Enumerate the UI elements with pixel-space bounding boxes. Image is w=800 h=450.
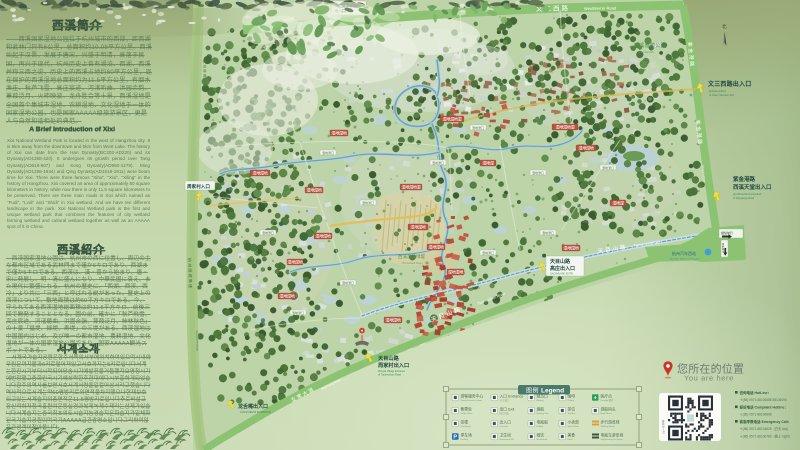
- svg-text:周家村入口: 周家村入口: [187, 183, 210, 190]
- svg-text:湿地湿地: 湿地湿地: [252, 170, 268, 177]
- svg-text:Restaurant: Restaurant: [537, 438, 548, 441]
- svg-text:紫金港路: 紫金港路: [733, 175, 756, 183]
- svg-text:LONGSHEZUI ENTRANCE: LONGSHEZUI ENTRANCE: [240, 411, 271, 414]
- svg-text:售票处: 售票处: [461, 406, 473, 411]
- svg-text:Coffee: Coffee: [568, 400, 575, 402]
- svg-text:湿地潭口: 湿地潭口: [602, 165, 614, 170]
- svg-text:龙舌嘴出入口: 龙舌嘴出入口: [237, 403, 268, 410]
- svg-text:游船码头: 游船码头: [601, 406, 616, 411]
- svg-text:杭州汽车西站: 杭州汽车西站: [672, 250, 696, 256]
- svg-text:Sightseeing Bus Route: Sightseeing Bus Route: [601, 438, 624, 441]
- svg-text:湿地湿地: 湿地湿地: [410, 224, 426, 231]
- svg-text:高庄出入口: 高庄出入口: [550, 265, 575, 272]
- svg-text:出入口: 出入口: [500, 419, 512, 424]
- svg-text:西溪天堂出入口: 西溪天堂出入口: [733, 183, 772, 191]
- svg-text:北: 北: [722, 23, 727, 30]
- svg-text:You are here: You are here: [684, 374, 734, 383]
- svg-text:西溪湿地绿堤: 西溪湿地绿堤: [398, 253, 425, 260]
- svg-text:茶位: 茶位: [568, 406, 576, 411]
- svg-text:湿地潭口: 湿地潭口: [362, 200, 374, 205]
- svg-text:Tea Bar: Tea Bar: [568, 412, 576, 415]
- svg-text:图例: 图例: [526, 387, 539, 395]
- svg-text:文三西路出入口: 文三西路出入口: [707, 80, 751, 88]
- svg-text:美食: 美食: [568, 432, 576, 437]
- svg-text:天目山路: 天目山路: [378, 354, 400, 362]
- svg-text:紧急呼救电话 Emergency Call：: 紧急呼救电话 Emergency Call：: [740, 419, 792, 424]
- svg-text:湿地湿地: 湿地湿地: [428, 244, 444, 251]
- svg-text:In & Out: In & Out: [500, 425, 508, 428]
- svg-text:微信扫一扫: 微信扫一扫: [661, 420, 666, 434]
- svg-text:茶楼: 茶楼: [461, 419, 469, 424]
- svg-text:湿地潭口: 湿地潭口: [482, 250, 494, 255]
- svg-text:湿地湿地湿: 湿地湿地湿: [443, 116, 463, 123]
- svg-text:West Bus Station To Hangzhou: West Bus Station To Hangzhou: [670, 258, 701, 261]
- svg-text:E-Boat: E-Boat: [537, 425, 544, 428]
- svg-text:卫生间: 卫生间: [500, 432, 512, 437]
- svg-text:周家村出入口: 周家村出入口: [378, 361, 409, 369]
- svg-text:观鸟口: 观鸟口: [537, 393, 549, 398]
- svg-text:＋(86) 0571-88106688 88106696: ＋(86) 0571-88106688 88106696: [740, 398, 787, 402]
- svg-text:湿地湿地: 湿地湿地: [331, 130, 347, 137]
- svg-text:湿地潭口: 湿地潭口: [472, 125, 484, 130]
- svg-text:and Road Entrance/Exit: and Road Entrance/Exit: [733, 192, 762, 196]
- svg-text:湿地湿地: 湿地湿地: [315, 233, 331, 240]
- svg-text:停车场: 停车场: [461, 432, 473, 437]
- svg-text:湿地湿地: 湿地湿地: [563, 245, 579, 252]
- svg-text:游客服务中心: 游客服务中心: [461, 393, 484, 398]
- svg-text:Tea House: Tea House: [461, 426, 472, 428]
- svg-text:渡船: 渡船: [537, 406, 545, 411]
- svg-text:湿地湿地: 湿地湿地: [578, 145, 594, 152]
- svg-text:西溪雅憩公园: 西溪雅憩公园: [634, 42, 666, 49]
- svg-text:电瓶船: 电瓶船: [537, 419, 549, 424]
- svg-text:小卖部: 小卖部: [568, 419, 580, 424]
- svg-text:of West Wensan Rd: of West Wensan Rd: [709, 93, 734, 97]
- svg-text:湿地潭口: 湿地潭口: [532, 170, 544, 175]
- svg-text:湿地潭口: 湿地潭口: [432, 160, 444, 165]
- svg-text:Tourist Service Center: Tourist Service Center: [461, 399, 483, 402]
- svg-text:WestWen'er Road: WestWen'er Road: [584, 5, 616, 11]
- svg-text:Xixi Yaqi Park: Xixi Yaqi Park: [638, 50, 655, 54]
- svg-text:入口 Entrance: 入口 Entrance: [500, 393, 524, 398]
- svg-text:餐饮: 餐饮: [537, 432, 545, 437]
- svg-text:of Zijingang Road: of Zijingang Road: [733, 196, 755, 200]
- svg-text:湿地湿地: 湿地湿地: [279, 293, 295, 300]
- svg-text:Boating Pier: Boating Pier: [537, 412, 549, 415]
- svg-text:Ticket Office: Ticket Office: [461, 412, 474, 415]
- svg-text:湿地湿地: 湿地湿地: [287, 259, 303, 266]
- svg-text:投诉电话 Complaint Hotline：: 投诉电话 Complaint Hotline：: [740, 405, 788, 410]
- svg-text:Boat Wharf: Boat Wharf: [601, 412, 612, 415]
- svg-text:咖啡: 咖啡: [568, 393, 576, 398]
- svg-text:Xixi Wetland Green: Xixi Wetland Green: [402, 262, 423, 265]
- svg-text:湿地湿地湿: 湿地湿地湿: [556, 124, 576, 131]
- svg-text:杭州绕城高速: 杭州绕城高速: [187, 258, 194, 289]
- svg-text:杭州绕城高速: 杭州绕城高速: [202, 60, 208, 88]
- svg-text:Store Kiosk: Store Kiosk: [568, 425, 580, 428]
- svg-text:湿地湿: 湿地湿: [482, 160, 495, 167]
- svg-text:医疗点: 医疗点: [601, 393, 613, 398]
- svg-text:Restrooms WC: Restrooms WC: [500, 438, 515, 441]
- svg-text:+: +: [594, 396, 597, 402]
- svg-text:＋(86) 0571-88104628（白天 day）: ＋(86) 0571-88104628（白天 day）: [740, 426, 791, 431]
- svg-text:继续前行: 继续前行: [721, 230, 733, 235]
- svg-text:湿地潭口: 湿地潭口: [542, 230, 554, 235]
- svg-text:湿地湿: 湿地湿: [612, 200, 625, 207]
- svg-text:湿地潭口: 湿地潭口: [262, 230, 274, 235]
- svg-text:出口 Exit: 出口 Exit: [500, 406, 516, 411]
- svg-text:湿地潭口: 湿地潭口: [322, 150, 334, 155]
- svg-text:天目山路: 天目山路: [550, 258, 571, 265]
- svg-text:＋(86) 0571-88106898: ＋(86) 0571-88106898: [740, 413, 772, 417]
- svg-text:湿地潭口: 湿地潭口: [342, 280, 354, 285]
- svg-text:湿地湿地: 湿地湿地: [448, 269, 464, 276]
- svg-text:Birding: Birding: [537, 399, 545, 402]
- svg-text:电瓶车游览线: 电瓶车游览线: [601, 432, 624, 437]
- svg-text:P: P: [453, 435, 457, 441]
- svg-text:湿地湿地: 湿地湿地: [385, 317, 401, 324]
- svg-text:湿地湿地湿: 湿地湿地湿: [402, 184, 422, 191]
- svg-text:湿地潭口: 湿地潭口: [292, 310, 304, 315]
- svg-text:Food: Food: [568, 439, 574, 441]
- svg-text:Walking Route: Walking Route: [601, 425, 616, 428]
- svg-text:咨询电话 HotLine：: 咨询电话 HotLine：: [740, 390, 772, 395]
- svg-text:Parking: Parking: [461, 438, 469, 441]
- svg-text:步行游览线: 步行游览线: [601, 419, 620, 424]
- svg-text:＋(86) 0571-88106789（晚上 night）: ＋(86) 0571-88106789（晚上 night）: [740, 434, 793, 439]
- svg-text:湿地湿地: 湿地湿地: [306, 187, 322, 194]
- svg-text:of Tianmushan Road: of Tianmushan Road: [378, 374, 402, 377]
- svg-text:GAOZHUANG ENTR.: GAOZHUANG ENTR.: [550, 273, 574, 276]
